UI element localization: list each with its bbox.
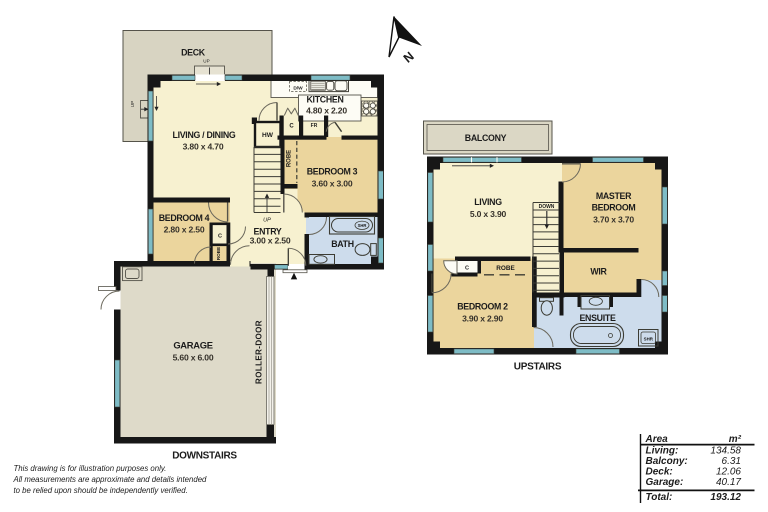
svg-text:ROLLER-DOOR: ROLLER-DOOR bbox=[255, 320, 264, 384]
svg-text:This drawing is for illustrati: This drawing is for illustration purpose… bbox=[14, 464, 167, 473]
svg-text:to be relied upon should be in: to be relied upon should be independentl… bbox=[14, 486, 188, 495]
svg-text:2.80 x 2.50: 2.80 x 2.50 bbox=[164, 225, 205, 235]
svg-text:DOWN: DOWN bbox=[539, 204, 555, 210]
svg-text:LIVING / DINING: LIVING / DINING bbox=[173, 130, 236, 140]
svg-text:ROBE: ROBE bbox=[496, 265, 515, 272]
svg-text:SHR: SHR bbox=[358, 223, 367, 228]
svg-text:UP: UP bbox=[263, 218, 271, 224]
svg-text:BATH: BATH bbox=[331, 239, 354, 249]
svg-text:BEDROOM 4: BEDROOM 4 bbox=[159, 213, 210, 223]
svg-text:ROBE: ROBE bbox=[287, 150, 293, 167]
svg-text:193.12: 193.12 bbox=[710, 492, 741, 503]
svg-text:3.60 x 3.00: 3.60 x 3.00 bbox=[312, 179, 353, 189]
svg-text:UPSTAIRS: UPSTAIRS bbox=[514, 362, 562, 373]
svg-text:All measurements are approxima: All measurements are approximate and det… bbox=[13, 475, 208, 484]
svg-text:C: C bbox=[289, 124, 294, 130]
svg-text:Balcony:: Balcony: bbox=[646, 456, 688, 467]
svg-text:MASTER: MASTER bbox=[596, 191, 632, 201]
svg-text:C: C bbox=[465, 266, 469, 272]
svg-text:C: C bbox=[218, 234, 222, 240]
svg-text:m²: m² bbox=[729, 434, 742, 445]
svg-text:DOWNSTAIRS: DOWNSTAIRS bbox=[172, 451, 237, 462]
svg-text:Garage:: Garage: bbox=[646, 477, 684, 488]
svg-text:SHR: SHR bbox=[644, 337, 654, 342]
svg-text:Deck:: Deck: bbox=[646, 467, 673, 478]
svg-text:KITCHEN: KITCHEN bbox=[307, 95, 344, 105]
svg-text:12.06: 12.06 bbox=[716, 467, 741, 478]
svg-text:HW: HW bbox=[262, 132, 274, 139]
svg-text:ROBE: ROBE bbox=[216, 247, 221, 260]
svg-text:UP: UP bbox=[130, 101, 135, 107]
svg-text:WIR: WIR bbox=[590, 267, 607, 277]
svg-text:LIVING: LIVING bbox=[474, 197, 502, 207]
svg-text:D/W: D/W bbox=[293, 85, 303, 91]
svg-text:134.58: 134.58 bbox=[710, 446, 741, 457]
svg-text:Total:: Total: bbox=[646, 492, 673, 503]
svg-text:Area: Area bbox=[645, 434, 669, 445]
svg-text:FR: FR bbox=[311, 123, 318, 129]
svg-text:Living:: Living: bbox=[646, 446, 679, 457]
svg-text:BEDROOM: BEDROOM bbox=[592, 203, 636, 213]
svg-text:3.90 x 2.90: 3.90 x 2.90 bbox=[462, 314, 503, 324]
svg-text:3.70 x 3.70: 3.70 x 3.70 bbox=[593, 215, 634, 225]
svg-text:BEDROOM 2: BEDROOM 2 bbox=[457, 302, 508, 312]
svg-text:BALCONY: BALCONY bbox=[465, 133, 507, 143]
svg-text:40.17: 40.17 bbox=[716, 477, 741, 488]
svg-text:ENSUITE: ENSUITE bbox=[579, 313, 615, 323]
svg-text:DECK: DECK bbox=[181, 48, 206, 58]
svg-text:4.80 x 2.20: 4.80 x 2.20 bbox=[306, 106, 347, 116]
svg-text:5.0 x 3.90: 5.0 x 3.90 bbox=[470, 209, 507, 219]
svg-text:5.60 x 6.00: 5.60 x 6.00 bbox=[173, 353, 214, 363]
svg-text:GARAGE: GARAGE bbox=[173, 340, 212, 351]
svg-text:6.31: 6.31 bbox=[722, 456, 741, 467]
svg-text:3.80 x 4.70: 3.80 x 4.70 bbox=[183, 142, 224, 152]
svg-text:UP: UP bbox=[203, 59, 209, 64]
svg-text:3.00 x 2.50: 3.00 x 2.50 bbox=[250, 236, 291, 246]
svg-text:BEDROOM 3: BEDROOM 3 bbox=[307, 167, 358, 177]
